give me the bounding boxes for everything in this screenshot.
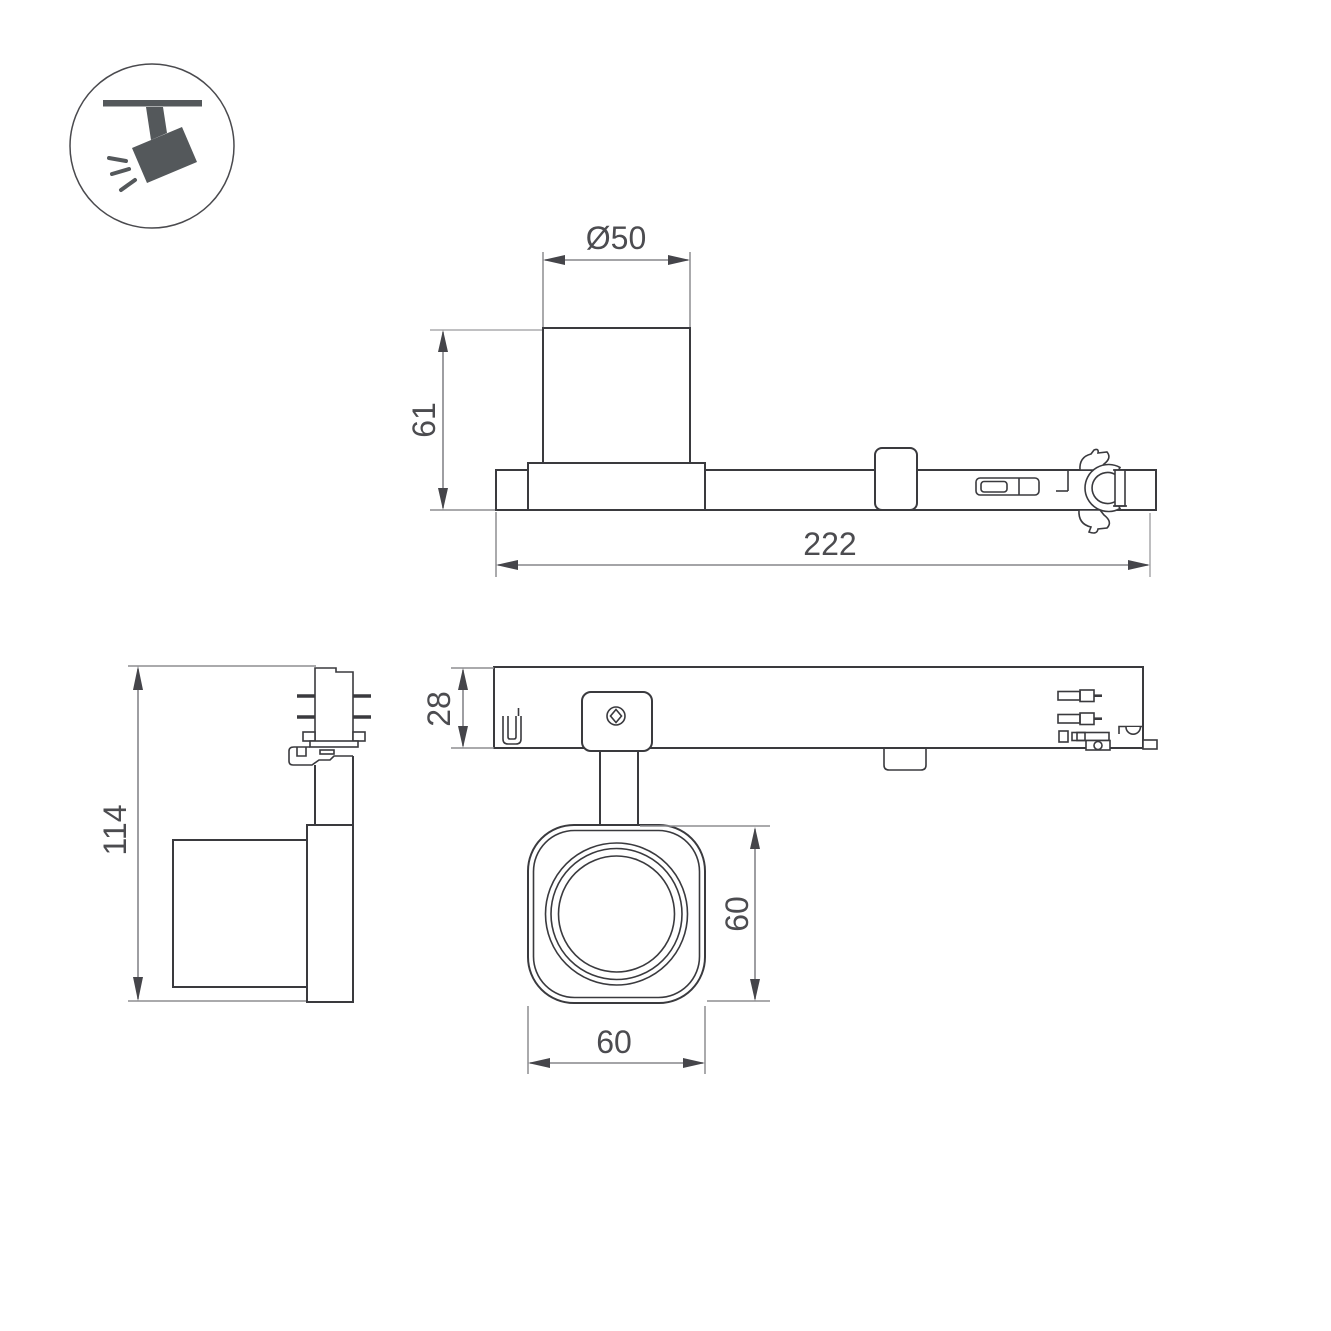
lens-ring-outer — [546, 843, 688, 985]
side-view: Ø50 61 222 — [406, 220, 1156, 577]
drawing-canvas: Ø50 61 222 — [0, 0, 1331, 1331]
adapter-tab-right — [353, 732, 365, 741]
icon-ceiling-bar — [103, 100, 202, 107]
adapter-tab-left — [303, 732, 315, 741]
arrow-down — [750, 979, 760, 1001]
top-view: 28 60 60 — [421, 667, 1157, 1074]
arrow-left — [528, 1058, 550, 1068]
adapter-block — [315, 668, 353, 746]
dimension-height-above-track: 61 — [406, 330, 448, 510]
adapter-plate — [310, 741, 358, 747]
arrow-right — [1128, 560, 1150, 570]
dim-label-222: 222 — [803, 526, 856, 562]
lamp-head-top — [528, 825, 705, 1003]
dim-label-28: 28 — [421, 691, 457, 727]
arrow-up — [438, 330, 448, 352]
dimension-lens-diameter: Ø50 — [543, 220, 690, 265]
dim-label-diameter: Ø50 — [586, 220, 646, 256]
lock-slider-switch — [976, 478, 1039, 495]
dimension-track-length: 222 — [496, 526, 1150, 570]
icon-light-rays — [109, 158, 135, 190]
arrow-right — [683, 1058, 705, 1068]
arrow-down — [458, 726, 468, 748]
dim-label-60-vertical: 60 — [719, 896, 755, 932]
arrow-up — [458, 668, 468, 690]
icon-lamp-body — [132, 127, 197, 183]
adapter-block — [875, 448, 917, 510]
dimension-track-width: 28 — [421, 668, 494, 748]
dimension-head-width: 60 — [528, 1006, 705, 1074]
arrow-left — [543, 255, 565, 265]
dim-label-61: 61 — [406, 402, 442, 438]
lamp-head — [173, 840, 307, 987]
front-view: 114 — [97, 666, 371, 1002]
lamp-body — [307, 825, 353, 1002]
arrow-left — [496, 560, 518, 570]
arrow-right — [668, 255, 690, 265]
lamp-cylinder — [543, 328, 690, 463]
dim-label-60-horizontal: 60 — [596, 1024, 632, 1060]
lamp-base-block — [528, 463, 705, 510]
arrow-up — [133, 666, 143, 690]
dim-label-114: 114 — [97, 804, 133, 855]
arrow-up — [750, 827, 760, 849]
bottom-tab — [884, 749, 926, 770]
dimension-total-height: 114 — [97, 666, 143, 1001]
technical-drawing-page: Ø50 61 222 — [0, 0, 1331, 1331]
mounting-hook — [289, 747, 353, 765]
arrow-down — [133, 977, 143, 1001]
arrow-down — [438, 488, 448, 510]
track-spotlight-icon — [70, 64, 234, 228]
